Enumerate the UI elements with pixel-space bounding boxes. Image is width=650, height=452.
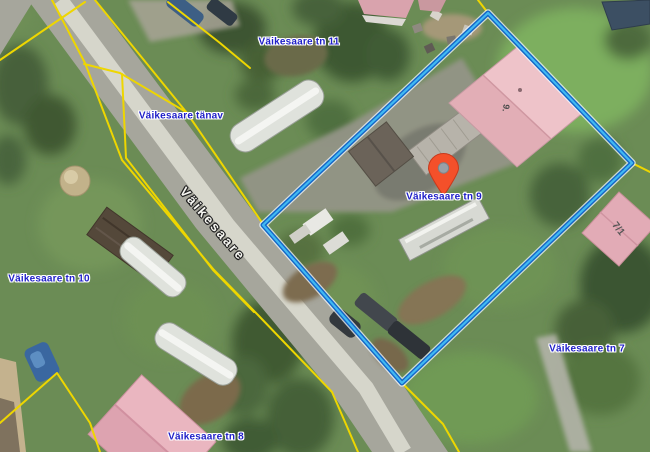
blue-tarp	[23, 340, 62, 384]
address-label-tn7: Väikesaare tn 7	[549, 344, 625, 355]
address-label-tn9: Väikesaare tn 9	[406, 192, 482, 203]
haystack	[60, 166, 90, 196]
building-left-edge	[0, 358, 26, 452]
address-label-tn10: Väikesaare tn 10	[8, 274, 90, 285]
map-canvas[interactable]: Väikesaare tn 11 Väikesaare tänav Väikes…	[0, 0, 650, 452]
building-number-label-9: 9.	[500, 103, 511, 112]
address-label-tn11: Väikesaare tn 11	[258, 37, 339, 48]
aerial-imagery	[0, 0, 650, 452]
address-label-tn8: Väikesaare tn 8	[168, 432, 244, 443]
street-name-label-top: Väikesaare tänav	[139, 111, 223, 122]
